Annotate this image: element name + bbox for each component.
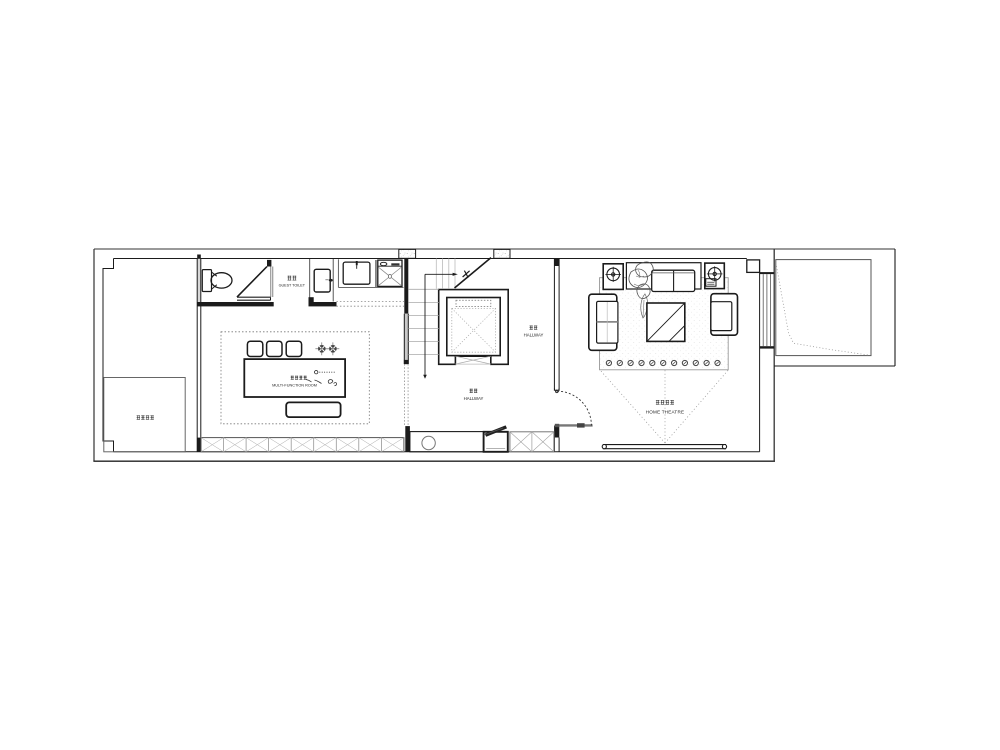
svg-text:HALLWAY: HALLWAY	[524, 332, 544, 337]
svg-text:HALLWAY: HALLWAY	[464, 396, 484, 401]
svg-text:HOME THEATRE: HOME THEATRE	[646, 409, 684, 414]
svg-text:GUEST TOILET: GUEST TOILET	[279, 283, 306, 287]
svg-text:MULTI-FUNCTION ROOM: MULTI-FUNCTION ROOM	[272, 384, 317, 388]
